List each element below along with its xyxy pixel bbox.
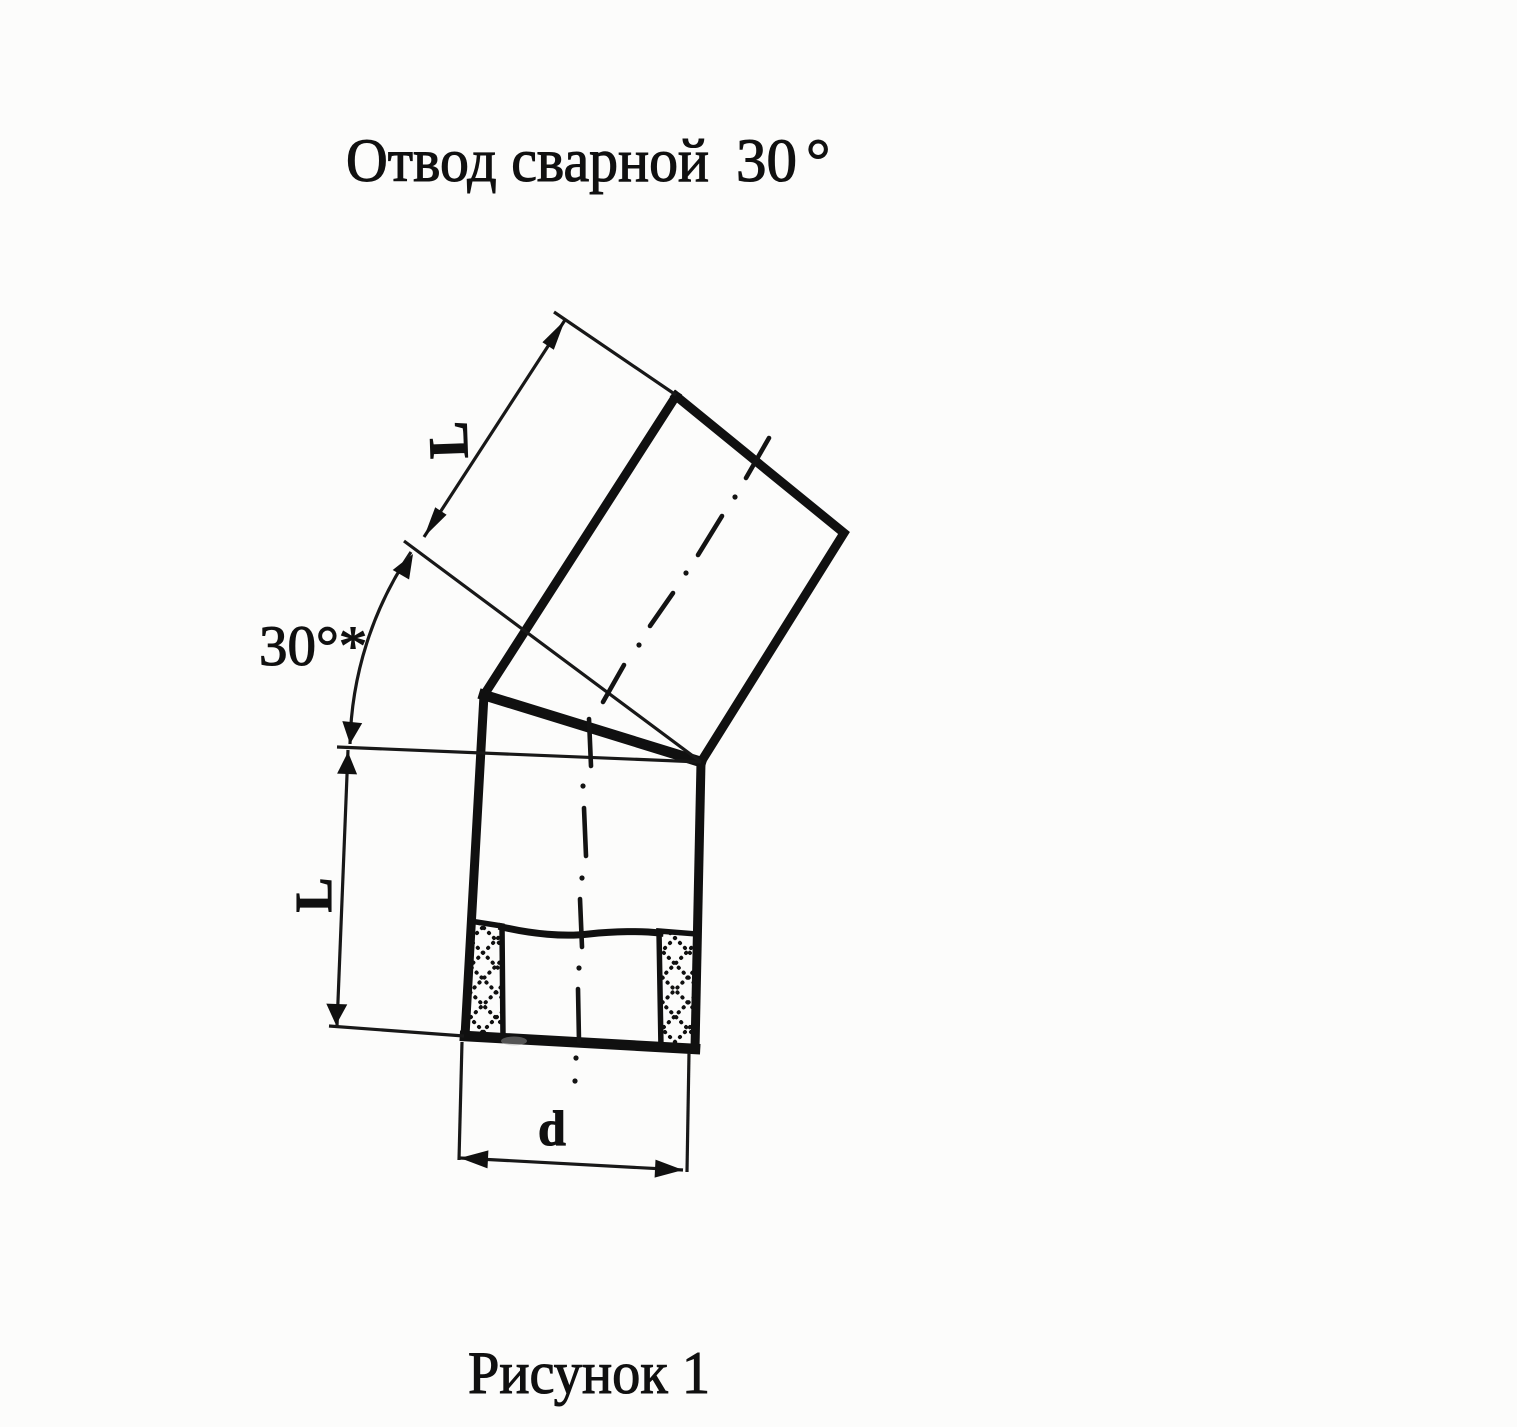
svg-text:L: L	[286, 878, 343, 913]
svg-text:d: d	[538, 1100, 566, 1156]
svg-text:30°*: 30°*	[259, 615, 367, 678]
svg-text:Рисунок 1: Рисунок 1	[468, 1340, 710, 1406]
svg-text:Отвод сварной: Отвод сварной	[346, 128, 709, 195]
svg-text:30: 30	[736, 128, 797, 195]
svg-text:L: L	[417, 420, 480, 460]
svg-text:°: °	[806, 128, 830, 195]
